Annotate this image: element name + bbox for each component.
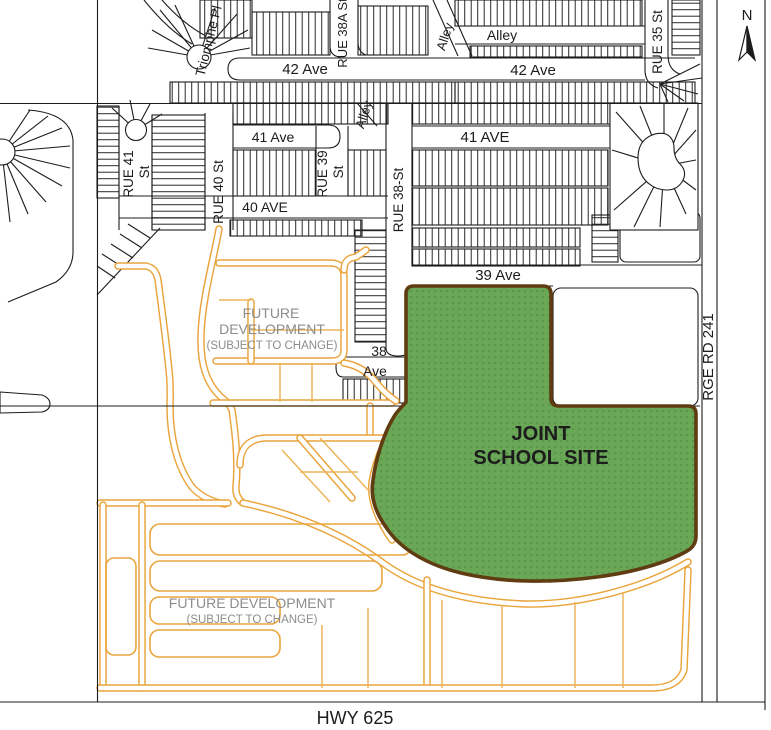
rue-35-st-label: RUE 35 St — [650, 10, 665, 74]
rue-41-st-label-1: RUE 41 — [121, 150, 136, 197]
future-dev-south-line1: FUTURE DEVELOPMENT — [169, 595, 336, 611]
school-site-label-1: JOINT — [512, 423, 571, 445]
alley-n-label: Alley — [487, 27, 517, 43]
map-canvas: N Triomphe Pl RUE 38A St Alley Alley 42 … — [0, 0, 771, 730]
ave-42-e-label: 42 Ave — [510, 62, 556, 79]
rue-40-st-label: RUE 40 St — [211, 160, 226, 224]
subdivision-plan-map: N Triomphe Pl RUE 38A St Alley Alley 42 … — [0, 0, 771, 730]
rue-39-st-label-2: St — [331, 165, 346, 178]
future-dev-south-line2: (SUBJECT TO CHANGE) — [187, 614, 318, 626]
ave-41-e-label: 41 AVE — [461, 129, 510, 146]
ave-38-label-2: Ave — [363, 363, 387, 379]
future-dev-north-line1: FUTURE — [243, 305, 300, 321]
school-site-label-2: SCHOOL SITE — [473, 447, 608, 469]
ave-38-label-1: 38 — [371, 343, 387, 359]
future-dev-north-line2: DEVELOPMENT — [219, 321, 325, 337]
rge-rd-241-label: RGE RD 241 — [700, 313, 717, 401]
hwy-625-label: HWY 625 — [317, 708, 394, 728]
ave-41-w-label: 41 Ave — [252, 129, 295, 145]
alley-nw-label: Alley — [433, 20, 456, 52]
rue-38a-st-label: RUE 38A St — [335, 0, 350, 68]
triomphe-pl-label: Triomphe Pl — [193, 4, 225, 78]
orange-lot-blocks — [106, 524, 412, 657]
rue-39-st-label-1: RUE 39 — [315, 150, 330, 197]
ave-42-w-label: 42 Ave — [282, 61, 328, 78]
ave-40-label: 40 AVE — [242, 199, 288, 215]
rue-41-st-label-2: St — [137, 165, 152, 178]
north-label: N — [742, 7, 753, 24]
west-cul-de-sac-spokes — [2, 110, 70, 222]
ave-39-label: 39 Ave — [475, 267, 521, 284]
future-dev-north-line3: (SUBJECT TO CHANGE) — [207, 340, 338, 352]
rue-38-st-label: RUE 38-St — [391, 167, 406, 232]
existing-subdivision-linework — [0, 0, 702, 413]
north-arrow — [739, 26, 755, 60]
